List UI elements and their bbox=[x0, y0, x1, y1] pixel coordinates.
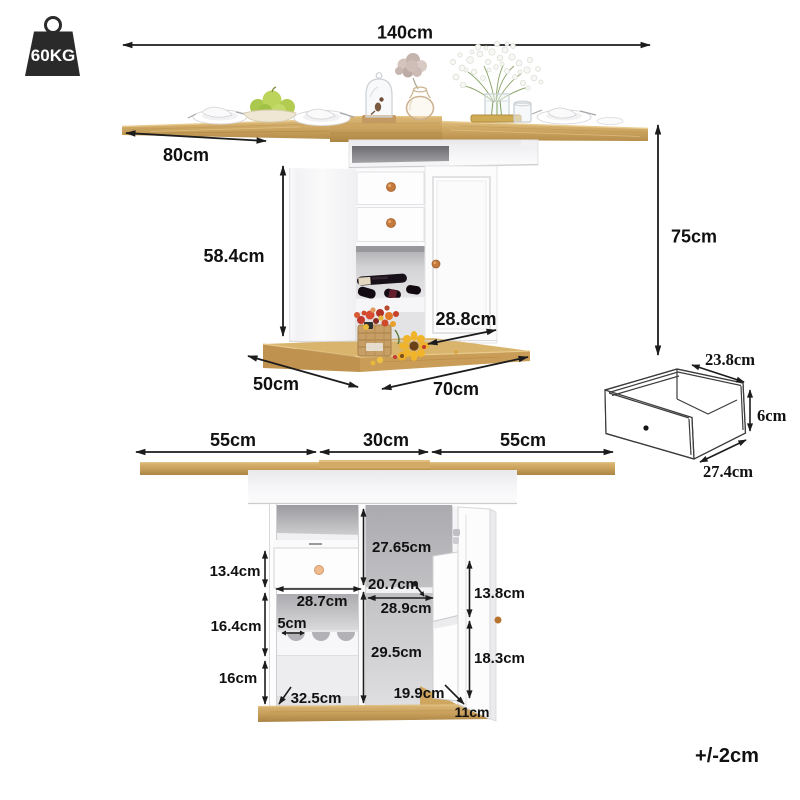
svg-text:6cm: 6cm bbox=[757, 406, 787, 425]
svg-text:140cm: 140cm bbox=[377, 23, 433, 43]
svg-text:28.8cm: 28.8cm bbox=[435, 309, 496, 329]
svg-text:27.65cm: 27.65cm bbox=[372, 539, 431, 556]
svg-text:32.5cm: 32.5cm bbox=[291, 690, 342, 707]
svg-text:75cm: 75cm bbox=[671, 227, 717, 247]
svg-text:80cm: 80cm bbox=[163, 145, 209, 165]
svg-text:13.4cm: 13.4cm bbox=[210, 563, 261, 580]
svg-text:11cm: 11cm bbox=[454, 704, 489, 720]
svg-text:13.8cm: 13.8cm bbox=[474, 585, 525, 602]
svg-text:58.4cm: 58.4cm bbox=[203, 246, 264, 266]
svg-text:19.9cm: 19.9cm bbox=[394, 685, 445, 702]
svg-text:70cm: 70cm bbox=[433, 379, 479, 399]
svg-text:55cm: 55cm bbox=[500, 430, 546, 450]
svg-text:28.9cm: 28.9cm bbox=[381, 600, 432, 617]
svg-text:+/-2cm: +/-2cm bbox=[695, 745, 759, 767]
svg-text:18.3cm: 18.3cm bbox=[474, 650, 525, 667]
svg-text:30cm: 30cm bbox=[363, 430, 409, 450]
svg-text:29.5cm: 29.5cm bbox=[371, 644, 422, 661]
svg-text:23.8cm: 23.8cm bbox=[705, 350, 755, 369]
svg-text:55cm: 55cm bbox=[210, 430, 256, 450]
svg-text:16.4cm: 16.4cm bbox=[211, 618, 262, 635]
svg-text:16cm: 16cm bbox=[219, 670, 257, 687]
svg-text:28.7cm: 28.7cm bbox=[297, 593, 348, 610]
svg-text:5cm: 5cm bbox=[277, 616, 306, 632]
svg-text:20.7cm: 20.7cm bbox=[368, 576, 419, 593]
svg-text:27.4cm: 27.4cm bbox=[703, 462, 753, 481]
svg-text:60KG: 60KG bbox=[31, 46, 75, 65]
svg-text:50cm: 50cm bbox=[253, 374, 299, 394]
